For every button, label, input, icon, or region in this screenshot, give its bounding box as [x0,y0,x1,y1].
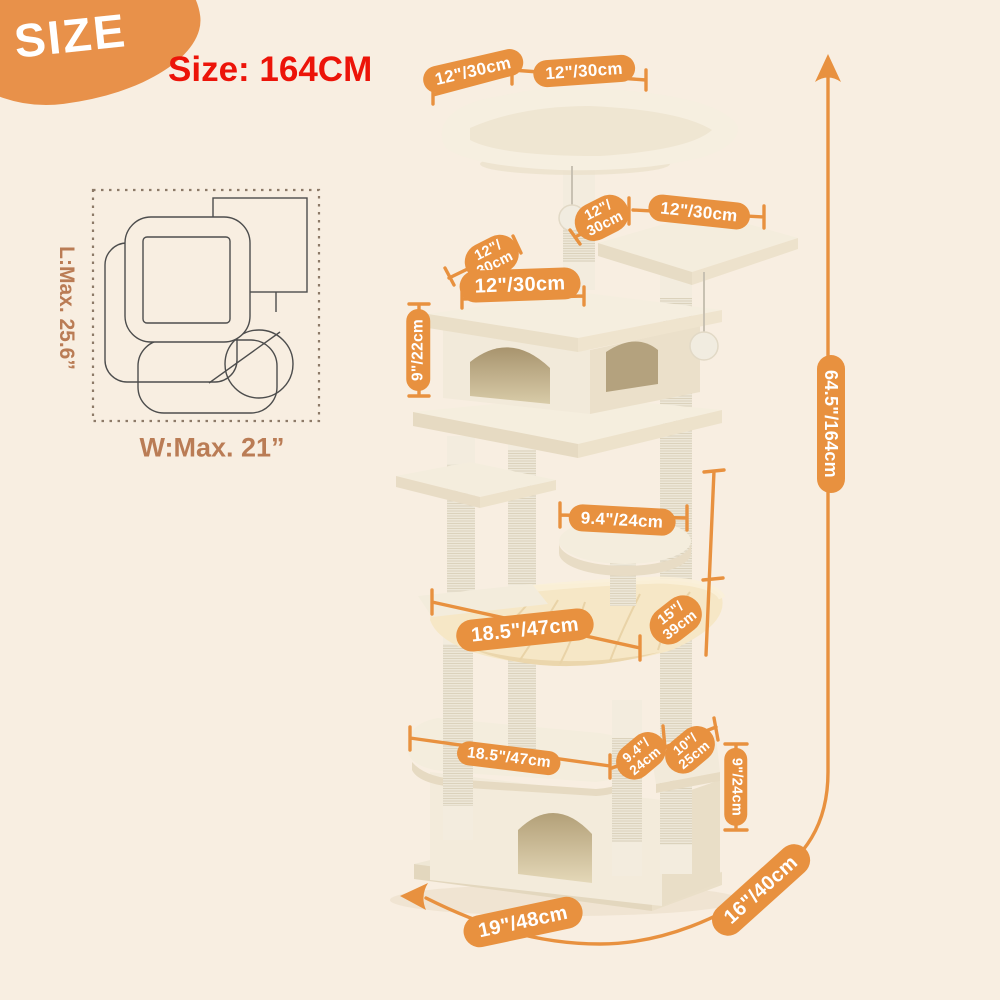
arrow-left-icon [400,883,428,910]
bed-length-label: L:Max. 25.6” [54,246,78,370]
measurement-lines [0,0,1000,1000]
size-infographic: SIZE Size: 164CM L:Max. 25.6” W:Max. 21”… [0,0,1000,1000]
dim-house-height: 9"/22cm [406,309,430,391]
size-title: Size: 164CM [168,50,372,90]
dim-total-height: 64.5"/164cm [817,355,845,493]
bed-width-label: W:Max. 21” [139,433,284,464]
dim-round-platform: 9.4"/24cm [568,504,676,537]
dim-house-width: 12"/30cm [459,267,581,303]
dim-condo-height: 9"/24cm [725,748,748,826]
hammock-depth-measure [703,470,724,655]
